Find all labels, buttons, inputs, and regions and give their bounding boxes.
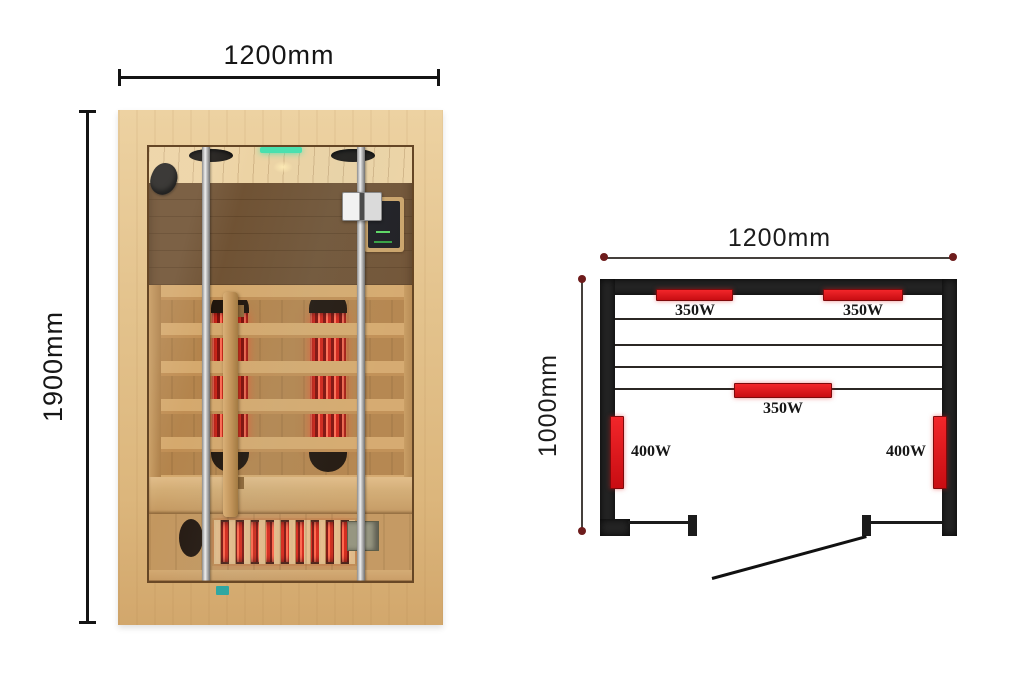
plan-depth-dimension-line	[581, 279, 583, 531]
heater-label-center: 350W	[738, 400, 828, 418]
dimension-tick	[79, 110, 96, 113]
heater-bar-center	[734, 383, 832, 398]
door-hinge	[342, 192, 382, 221]
plan-wall-top	[600, 279, 957, 295]
front-height-dimension: 1900mm	[26, 110, 82, 623]
page: 1200mm 1900mm	[0, 0, 1024, 697]
heater-bar-left-wall	[610, 416, 624, 489]
brand-sticker	[216, 586, 229, 595]
front-height-dimension-line	[86, 111, 89, 622]
plan-corner-block	[600, 519, 630, 536]
heater-bar-right-wall	[933, 416, 947, 489]
heater-label-top-right: 350W	[818, 302, 908, 320]
door-post-right	[862, 515, 871, 536]
front-height-label: 1900mm	[39, 311, 70, 422]
bench-line	[615, 366, 942, 368]
sauna-photo	[118, 110, 443, 625]
door-handle	[223, 292, 238, 517]
front-view-section: 1200mm 1900mm	[0, 0, 500, 697]
plan-wall-right	[942, 279, 957, 536]
dimension-dot	[949, 253, 957, 261]
door-opening	[147, 145, 414, 583]
dimension-tick	[118, 69, 121, 86]
plan-depth-label: 1000mm	[535, 353, 564, 456]
heater-bar-top-left	[656, 289, 733, 301]
base-seam	[147, 580, 414, 583]
door-post-left	[688, 515, 697, 536]
glass-line-right	[869, 521, 942, 524]
heater-bar-top-right	[823, 289, 903, 301]
plan-wall-left	[600, 279, 615, 536]
plan-depth-dimension: 1000mm	[520, 279, 578, 531]
front-width-label: 1200mm	[120, 40, 438, 72]
heater-label-top-left: 350W	[650, 302, 740, 320]
door-frame-rod-left	[202, 147, 210, 583]
floor-plan-section: 1200mm 1000mm 350W 3	[500, 0, 1024, 697]
heater-label-right-wall: 400W	[866, 443, 926, 461]
dimension-tick	[79, 621, 96, 624]
dimension-tick	[437, 69, 440, 86]
door-swing-line	[712, 535, 867, 580]
dimension-dot	[600, 253, 608, 261]
plan-width-dimension-line	[604, 257, 955, 259]
heater-label-left-wall: 400W	[631, 443, 691, 461]
dimension-dot	[578, 527, 586, 535]
dimension-dot	[578, 275, 586, 283]
plan-width-label: 1200mm	[604, 224, 955, 254]
front-width-dimension-line	[120, 76, 438, 79]
glass-line-left	[628, 521, 690, 524]
bench-line	[615, 344, 942, 346]
